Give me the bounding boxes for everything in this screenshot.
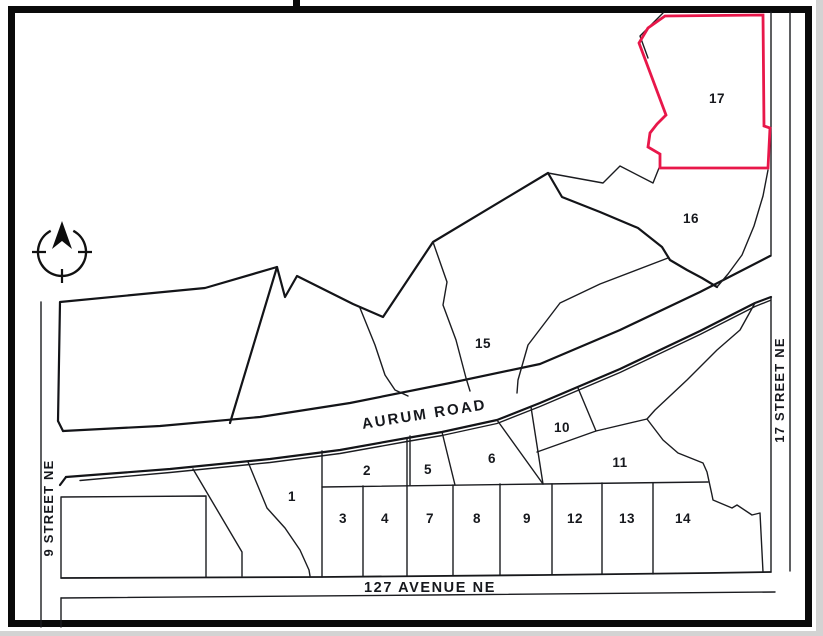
parcel-label-12: 12	[567, 511, 583, 526]
aurum-road-north-edge	[63, 256, 770, 431]
street-labels: AURUM ROAD 127 AVENUE NE 9 STREET NE 17 …	[41, 337, 787, 596]
parcel-label-1: 1	[288, 489, 296, 504]
parcel-label-2: 2	[363, 463, 371, 478]
parcel-label-7: 7	[426, 511, 434, 526]
parcel-16-north-boundary	[548, 166, 659, 183]
parcel-label-3: 3	[339, 511, 347, 526]
bottom-row-top-edge	[322, 482, 708, 487]
parcel-label-11: 11	[612, 455, 627, 470]
parcel-label-4: 4	[381, 511, 389, 526]
east-jagged-boundary	[647, 303, 763, 572]
southwest-rectangle-parcel	[61, 496, 206, 577]
avenue-127-label: 127 AVENUE NE	[364, 580, 496, 596]
parcel-label-5: 5	[424, 462, 432, 477]
parcel-16-west-boundary	[548, 173, 717, 287]
parcel-label-14: 14	[675, 511, 691, 526]
parcel-map: 1 2 3 4 5 6 7 8 9 10 11 12 13 14 15 16 1…	[0, 0, 823, 636]
street-17-lines	[771, 12, 790, 571]
north-parcel-boundaries	[58, 13, 768, 423]
parcel-label-6: 6	[488, 451, 496, 466]
west-parcel-diagonal	[230, 267, 277, 423]
cropped-title-text-fragment	[293, 0, 300, 7]
highlighted-parcel-17-boundary	[639, 15, 770, 168]
north-arrow	[52, 221, 72, 249]
map-border-frame	[12, 10, 809, 624]
parcel-label-17: 17	[709, 91, 725, 106]
parcel-label-10: 10	[554, 420, 570, 435]
aurum-road-south-edge	[66, 297, 771, 477]
parcel-label-13: 13	[619, 511, 635, 526]
parcel-label-8: 8	[473, 511, 481, 526]
compass-north-icon	[32, 221, 92, 283]
lot-1-west-boundary	[248, 462, 310, 576]
street-9-label: 9 STREET NE	[41, 460, 56, 557]
street-17-label: 17 STREET NE	[772, 337, 787, 442]
aurum-road-label: AURUM ROAD	[361, 396, 488, 433]
parcel-label-16: 16	[683, 211, 699, 226]
parcel-15-east-boundary	[517, 258, 668, 393]
parcel-label-9: 9	[523, 511, 531, 526]
parcel-label-15: 15	[475, 336, 491, 351]
west-parcel-outline	[58, 173, 548, 421]
aurum-road-edges	[58, 256, 771, 485]
